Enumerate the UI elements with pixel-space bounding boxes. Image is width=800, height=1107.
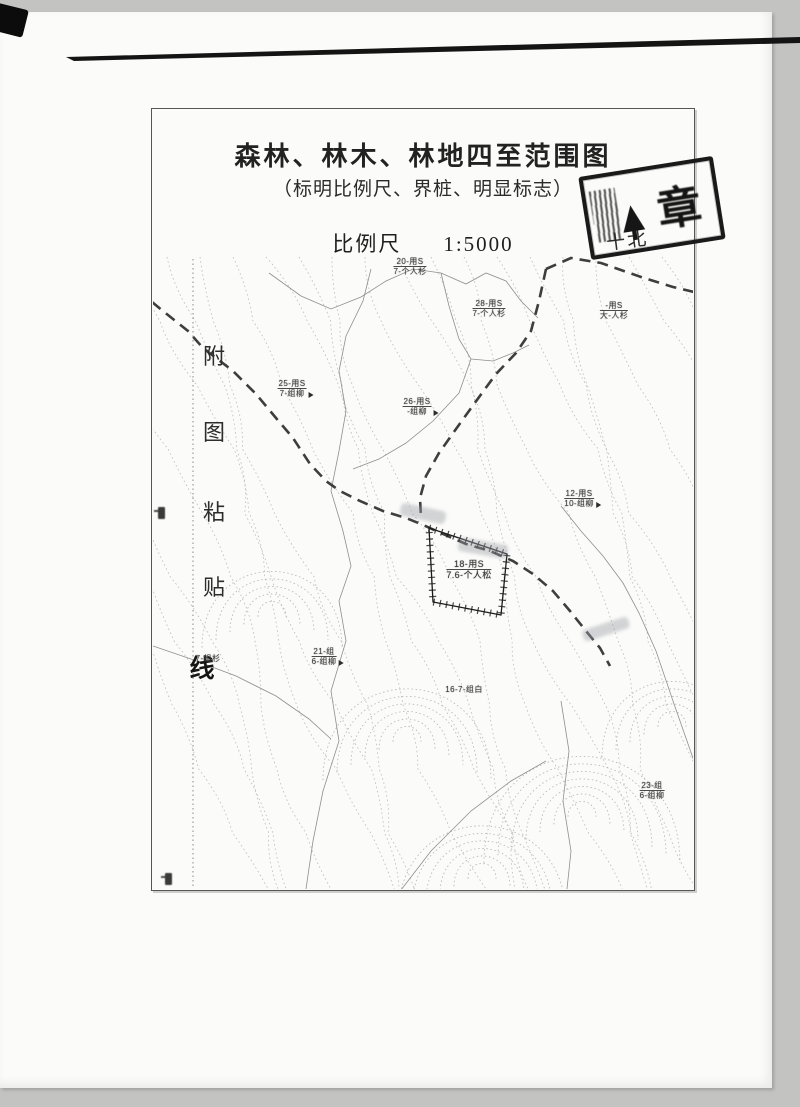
stamp-character: 章	[637, 166, 720, 241]
scanned-document: 森林、林木、林地四至范围图 （标明比例尺、界桩、明显标志） 比例尺1:5000 …	[0, 0, 800, 1107]
flag-mark-icon	[596, 502, 601, 508]
scan-fold-line	[0, 0, 800, 80]
map-compartment-label: 21-组6-组柳	[312, 647, 337, 666]
map-compartment-label: 16-7-组白	[444, 685, 483, 694]
map-compartment-label: 7-组杉	[195, 654, 222, 663]
map-compartment-label: -用S大-人杉	[600, 301, 628, 320]
map-compartment-label: 26-用S-组柳	[403, 397, 432, 416]
flag-mark-icon	[308, 392, 313, 398]
map-compartment-label: 25-用S7-组柳	[278, 379, 307, 398]
flag-mark-icon	[338, 660, 343, 666]
stamp-smear	[589, 188, 623, 243]
map-compartment-label: 18-用S7.6-个人松	[446, 559, 491, 580]
map-compartment-label: 23-组6-组柳	[640, 781, 665, 800]
map-compartment-label: 28-用S7-个人杉	[472, 299, 505, 318]
map-compartment-label: 12-用S10-组柳	[564, 489, 594, 508]
map-compartment-label: 20-用S7-个人杉	[393, 257, 426, 276]
flag-mark-icon	[433, 410, 438, 416]
